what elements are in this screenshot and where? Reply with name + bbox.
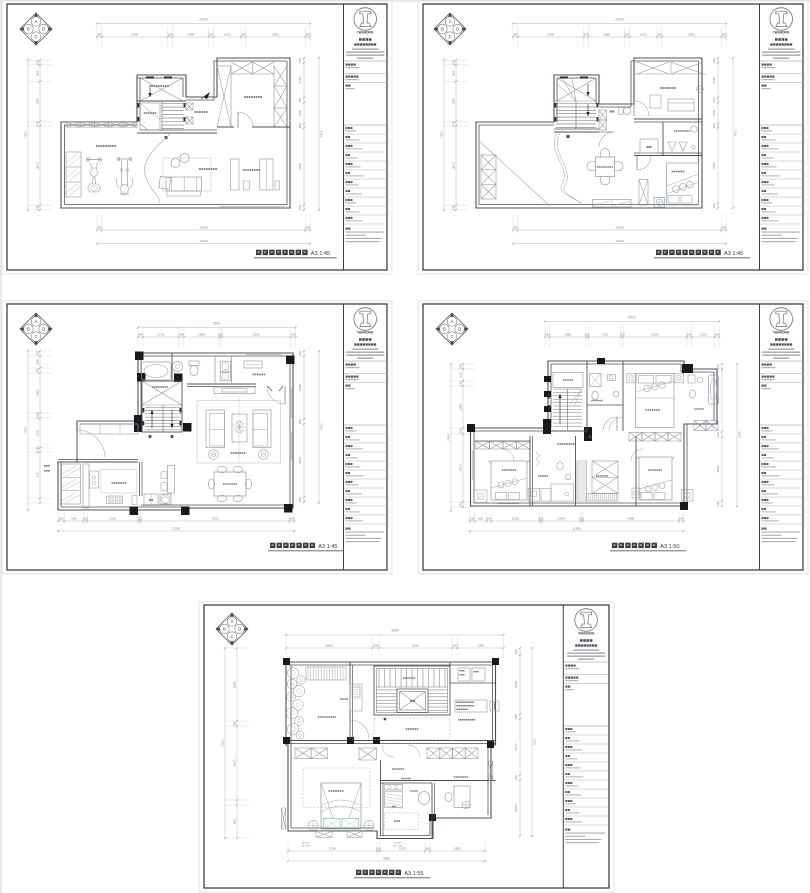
svg-text:240: 240 bbox=[168, 32, 173, 36]
svg-text:240: 240 bbox=[97, 32, 102, 36]
svg-text:11030: 11030 bbox=[615, 239, 624, 243]
svg-text:11030: 11030 bbox=[199, 18, 208, 22]
svg-text:AC 1540: AC 1540 bbox=[302, 845, 311, 848]
svg-text:200: 200 bbox=[712, 123, 716, 128]
svg-text:1700: 1700 bbox=[601, 332, 608, 336]
svg-text:3150: 3150 bbox=[412, 643, 419, 647]
svg-text:1880: 1880 bbox=[564, 332, 571, 336]
svg-text:830: 830 bbox=[514, 714, 518, 719]
svg-text:300: 300 bbox=[373, 643, 378, 647]
svg-text:240: 240 bbox=[716, 501, 720, 506]
svg-text:4980: 4980 bbox=[627, 516, 634, 520]
svg-text:C: C bbox=[34, 334, 37, 339]
svg-text:240: 240 bbox=[470, 516, 475, 520]
svg-text:240: 240 bbox=[514, 649, 518, 654]
svg-text:B: B bbox=[223, 627, 226, 632]
svg-text:1980: 1980 bbox=[477, 643, 484, 647]
svg-text:2240: 2240 bbox=[36, 446, 40, 453]
svg-text:240: 240 bbox=[305, 225, 310, 229]
svg-text:3190: 3190 bbox=[514, 681, 518, 688]
svg-text:5540: 5540 bbox=[233, 681, 237, 688]
svg-text:240: 240 bbox=[679, 516, 684, 520]
svg-text:120: 120 bbox=[218, 332, 223, 336]
svg-text:A3 1:45: A3 1:45 bbox=[311, 251, 330, 257]
svg-text:240: 240 bbox=[712, 97, 716, 102]
svg-text:3910: 3910 bbox=[452, 162, 456, 169]
svg-text:240: 240 bbox=[513, 32, 518, 36]
svg-text:560: 560 bbox=[233, 819, 237, 824]
svg-text:D: D bbox=[456, 27, 459, 32]
svg-text:240: 240 bbox=[209, 32, 214, 36]
svg-text:AC 1740: AC 1740 bbox=[394, 845, 403, 848]
svg-text:AT 840: AT 840 bbox=[303, 842, 311, 845]
svg-text:240: 240 bbox=[687, 332, 692, 336]
svg-text:D: D bbox=[42, 27, 45, 32]
svg-text:240: 240 bbox=[716, 432, 720, 437]
svg-text:7410: 7410 bbox=[320, 130, 324, 137]
svg-text:11290: 11290 bbox=[172, 526, 181, 530]
svg-text:9350: 9350 bbox=[391, 629, 398, 633]
svg-text:240: 240 bbox=[298, 97, 302, 102]
svg-text:9010: 9010 bbox=[628, 316, 635, 320]
svg-text:7410: 7410 bbox=[24, 427, 28, 434]
svg-text:240: 240 bbox=[514, 775, 518, 780]
svg-text:2510: 2510 bbox=[512, 516, 519, 520]
svg-text:7020: 7020 bbox=[211, 516, 218, 520]
svg-text:3790: 3790 bbox=[329, 846, 336, 850]
svg-text:7500: 7500 bbox=[212, 322, 219, 326]
svg-text:620: 620 bbox=[459, 372, 463, 377]
svg-text:240: 240 bbox=[712, 58, 716, 63]
svg-text:1980: 1980 bbox=[459, 403, 463, 410]
svg-text:120: 120 bbox=[620, 332, 625, 336]
svg-text:240: 240 bbox=[716, 364, 720, 369]
svg-text:1880: 1880 bbox=[187, 32, 194, 36]
svg-text:3430: 3430 bbox=[547, 32, 554, 36]
svg-text:580: 580 bbox=[36, 359, 40, 364]
svg-text:240: 240 bbox=[298, 205, 302, 210]
svg-text:11030: 11030 bbox=[615, 18, 624, 22]
svg-text:3290: 3290 bbox=[652, 332, 659, 336]
svg-text:120: 120 bbox=[538, 516, 543, 520]
svg-text:7410: 7410 bbox=[440, 131, 444, 138]
svg-text:3090: 3090 bbox=[688, 32, 695, 36]
svg-text:3910: 3910 bbox=[36, 162, 40, 169]
svg-text:240: 240 bbox=[584, 32, 589, 36]
svg-text:240: 240 bbox=[36, 430, 40, 435]
svg-text:240: 240 bbox=[36, 121, 40, 126]
svg-text:810: 810 bbox=[36, 70, 40, 75]
svg-text:1720: 1720 bbox=[298, 77, 302, 84]
svg-text:2650: 2650 bbox=[712, 162, 716, 169]
svg-text:120: 120 bbox=[584, 332, 589, 336]
svg-text:C: C bbox=[448, 34, 451, 39]
svg-text:240: 240 bbox=[425, 846, 430, 850]
svg-text:1040: 1040 bbox=[298, 109, 302, 116]
svg-text:240: 240 bbox=[36, 368, 40, 373]
svg-text:3090: 3090 bbox=[272, 32, 279, 36]
svg-text:250: 250 bbox=[298, 419, 302, 424]
svg-text:240: 240 bbox=[714, 332, 719, 336]
svg-text:A: A bbox=[449, 19, 452, 24]
svg-text:YANHONG: YANHONG bbox=[773, 31, 790, 35]
svg-text:3810: 3810 bbox=[459, 464, 463, 471]
svg-text:3630: 3630 bbox=[716, 465, 720, 472]
svg-text:1680: 1680 bbox=[198, 332, 205, 336]
svg-text:240: 240 bbox=[721, 225, 726, 229]
svg-text:1720: 1720 bbox=[712, 77, 716, 84]
svg-text:240: 240 bbox=[452, 121, 456, 126]
svg-text:A3 1:50: A3 1:50 bbox=[660, 544, 679, 550]
svg-text:A: A bbox=[35, 19, 38, 24]
svg-text:240: 240 bbox=[712, 203, 716, 208]
svg-text:1990: 1990 bbox=[558, 516, 565, 520]
svg-text:180: 180 bbox=[83, 516, 88, 520]
svg-text:B: B bbox=[443, 327, 446, 332]
svg-text:11350: 11350 bbox=[572, 526, 581, 530]
svg-text:240: 240 bbox=[452, 643, 457, 647]
svg-text:240: 240 bbox=[545, 332, 550, 336]
svg-text:B: B bbox=[27, 327, 30, 332]
svg-text:240: 240 bbox=[36, 60, 40, 65]
svg-text:3080: 3080 bbox=[298, 384, 302, 391]
svg-text:11030: 11030 bbox=[199, 239, 208, 243]
svg-text:3670: 3670 bbox=[233, 759, 237, 766]
svg-text:A: A bbox=[231, 619, 234, 624]
svg-text:3430: 3430 bbox=[131, 32, 138, 36]
svg-text:1460: 1460 bbox=[36, 412, 40, 419]
svg-text:630: 630 bbox=[478, 516, 483, 520]
svg-text:240: 240 bbox=[513, 225, 518, 229]
svg-text:3680: 3680 bbox=[326, 643, 333, 647]
svg-text:450: 450 bbox=[233, 721, 237, 726]
svg-text:C: C bbox=[450, 334, 453, 339]
svg-text:240: 240 bbox=[459, 428, 463, 433]
svg-text:120: 120 bbox=[137, 516, 142, 520]
svg-text:9080: 9080 bbox=[383, 856, 390, 860]
svg-text:A3 1:45: A3 1:45 bbox=[724, 251, 743, 257]
svg-text:300: 300 bbox=[59, 516, 64, 520]
svg-text:240: 240 bbox=[459, 364, 463, 369]
svg-text:1970: 1970 bbox=[452, 97, 456, 104]
svg-text:1710: 1710 bbox=[157, 332, 164, 336]
svg-text:B: B bbox=[27, 27, 30, 32]
svg-text:1880: 1880 bbox=[603, 32, 610, 36]
svg-text:240: 240 bbox=[36, 351, 40, 356]
svg-text:5600: 5600 bbox=[514, 804, 518, 811]
svg-text:240: 240 bbox=[657, 32, 662, 36]
svg-text:B: B bbox=[441, 27, 444, 32]
svg-text:7210: 7210 bbox=[533, 738, 537, 745]
svg-text:2600: 2600 bbox=[454, 846, 461, 850]
svg-text:C: C bbox=[230, 634, 233, 639]
svg-text:1950: 1950 bbox=[36, 389, 40, 396]
svg-text:240: 240 bbox=[291, 332, 296, 336]
svg-text:1430: 1430 bbox=[224, 32, 231, 36]
svg-text:1430: 1430 bbox=[640, 32, 647, 36]
svg-text:YANHONG: YANHONG bbox=[357, 331, 374, 335]
svg-text:7210: 7210 bbox=[221, 739, 225, 746]
svg-text:D: D bbox=[42, 327, 45, 332]
svg-text:A3 1:55: A3 1:55 bbox=[404, 871, 423, 877]
svg-text:1970: 1970 bbox=[36, 97, 40, 104]
svg-text:900: 900 bbox=[71, 516, 76, 520]
svg-text:D: D bbox=[458, 327, 461, 332]
svg-text:A: A bbox=[451, 319, 454, 324]
svg-text:7440: 7440 bbox=[738, 431, 742, 438]
svg-text:240: 240 bbox=[459, 502, 463, 507]
svg-text:A: A bbox=[35, 319, 38, 324]
svg-text:C: C bbox=[34, 34, 37, 39]
svg-text:7410: 7410 bbox=[24, 131, 28, 138]
svg-text:240: 240 bbox=[179, 332, 184, 336]
svg-text:240: 240 bbox=[459, 381, 463, 386]
svg-text:240: 240 bbox=[305, 32, 310, 36]
svg-text:A3 1:45: A3 1:45 bbox=[318, 544, 337, 550]
svg-text:10550: 10550 bbox=[615, 225, 624, 229]
svg-text:1040: 1040 bbox=[712, 109, 716, 116]
svg-text:240: 240 bbox=[241, 32, 246, 36]
svg-text:AT 840: AT 840 bbox=[395, 842, 403, 845]
svg-text:240: 240 bbox=[36, 472, 40, 477]
svg-text:240: 240 bbox=[298, 58, 302, 63]
svg-text:240: 240 bbox=[289, 516, 294, 520]
svg-text:3620: 3620 bbox=[298, 457, 302, 464]
svg-text:5630: 5630 bbox=[298, 163, 302, 170]
svg-text:240: 240 bbox=[721, 32, 726, 36]
svg-text:240: 240 bbox=[138, 332, 143, 336]
svg-text:120: 120 bbox=[579, 516, 584, 520]
svg-text:810: 810 bbox=[452, 70, 456, 75]
svg-text:240: 240 bbox=[97, 225, 102, 229]
svg-text:7410: 7410 bbox=[734, 129, 738, 136]
svg-text:240: 240 bbox=[298, 497, 302, 502]
svg-text:2430: 2430 bbox=[109, 516, 116, 520]
svg-text:YANHONG: YANHONG bbox=[578, 632, 595, 636]
svg-text:7440: 7440 bbox=[447, 434, 451, 441]
svg-text:240: 240 bbox=[36, 205, 40, 210]
svg-text:120: 120 bbox=[376, 846, 381, 850]
svg-text:240: 240 bbox=[452, 205, 456, 210]
svg-text:240: 240 bbox=[452, 60, 456, 65]
svg-text:D: D bbox=[238, 627, 241, 632]
svg-text:240: 240 bbox=[625, 32, 630, 36]
svg-text:240: 240 bbox=[486, 516, 491, 520]
svg-text:YANHONG: YANHONG bbox=[773, 331, 790, 335]
svg-text:2870: 2870 bbox=[514, 743, 518, 750]
svg-text:240: 240 bbox=[298, 351, 302, 356]
svg-text:200: 200 bbox=[298, 123, 302, 128]
svg-text:7410: 7410 bbox=[320, 423, 324, 430]
svg-text:1200: 1200 bbox=[700, 332, 707, 336]
svg-text:10550: 10550 bbox=[199, 225, 208, 229]
svg-text:3280: 3280 bbox=[253, 332, 260, 336]
svg-text:YANHONG: YANHONG bbox=[357, 31, 374, 35]
